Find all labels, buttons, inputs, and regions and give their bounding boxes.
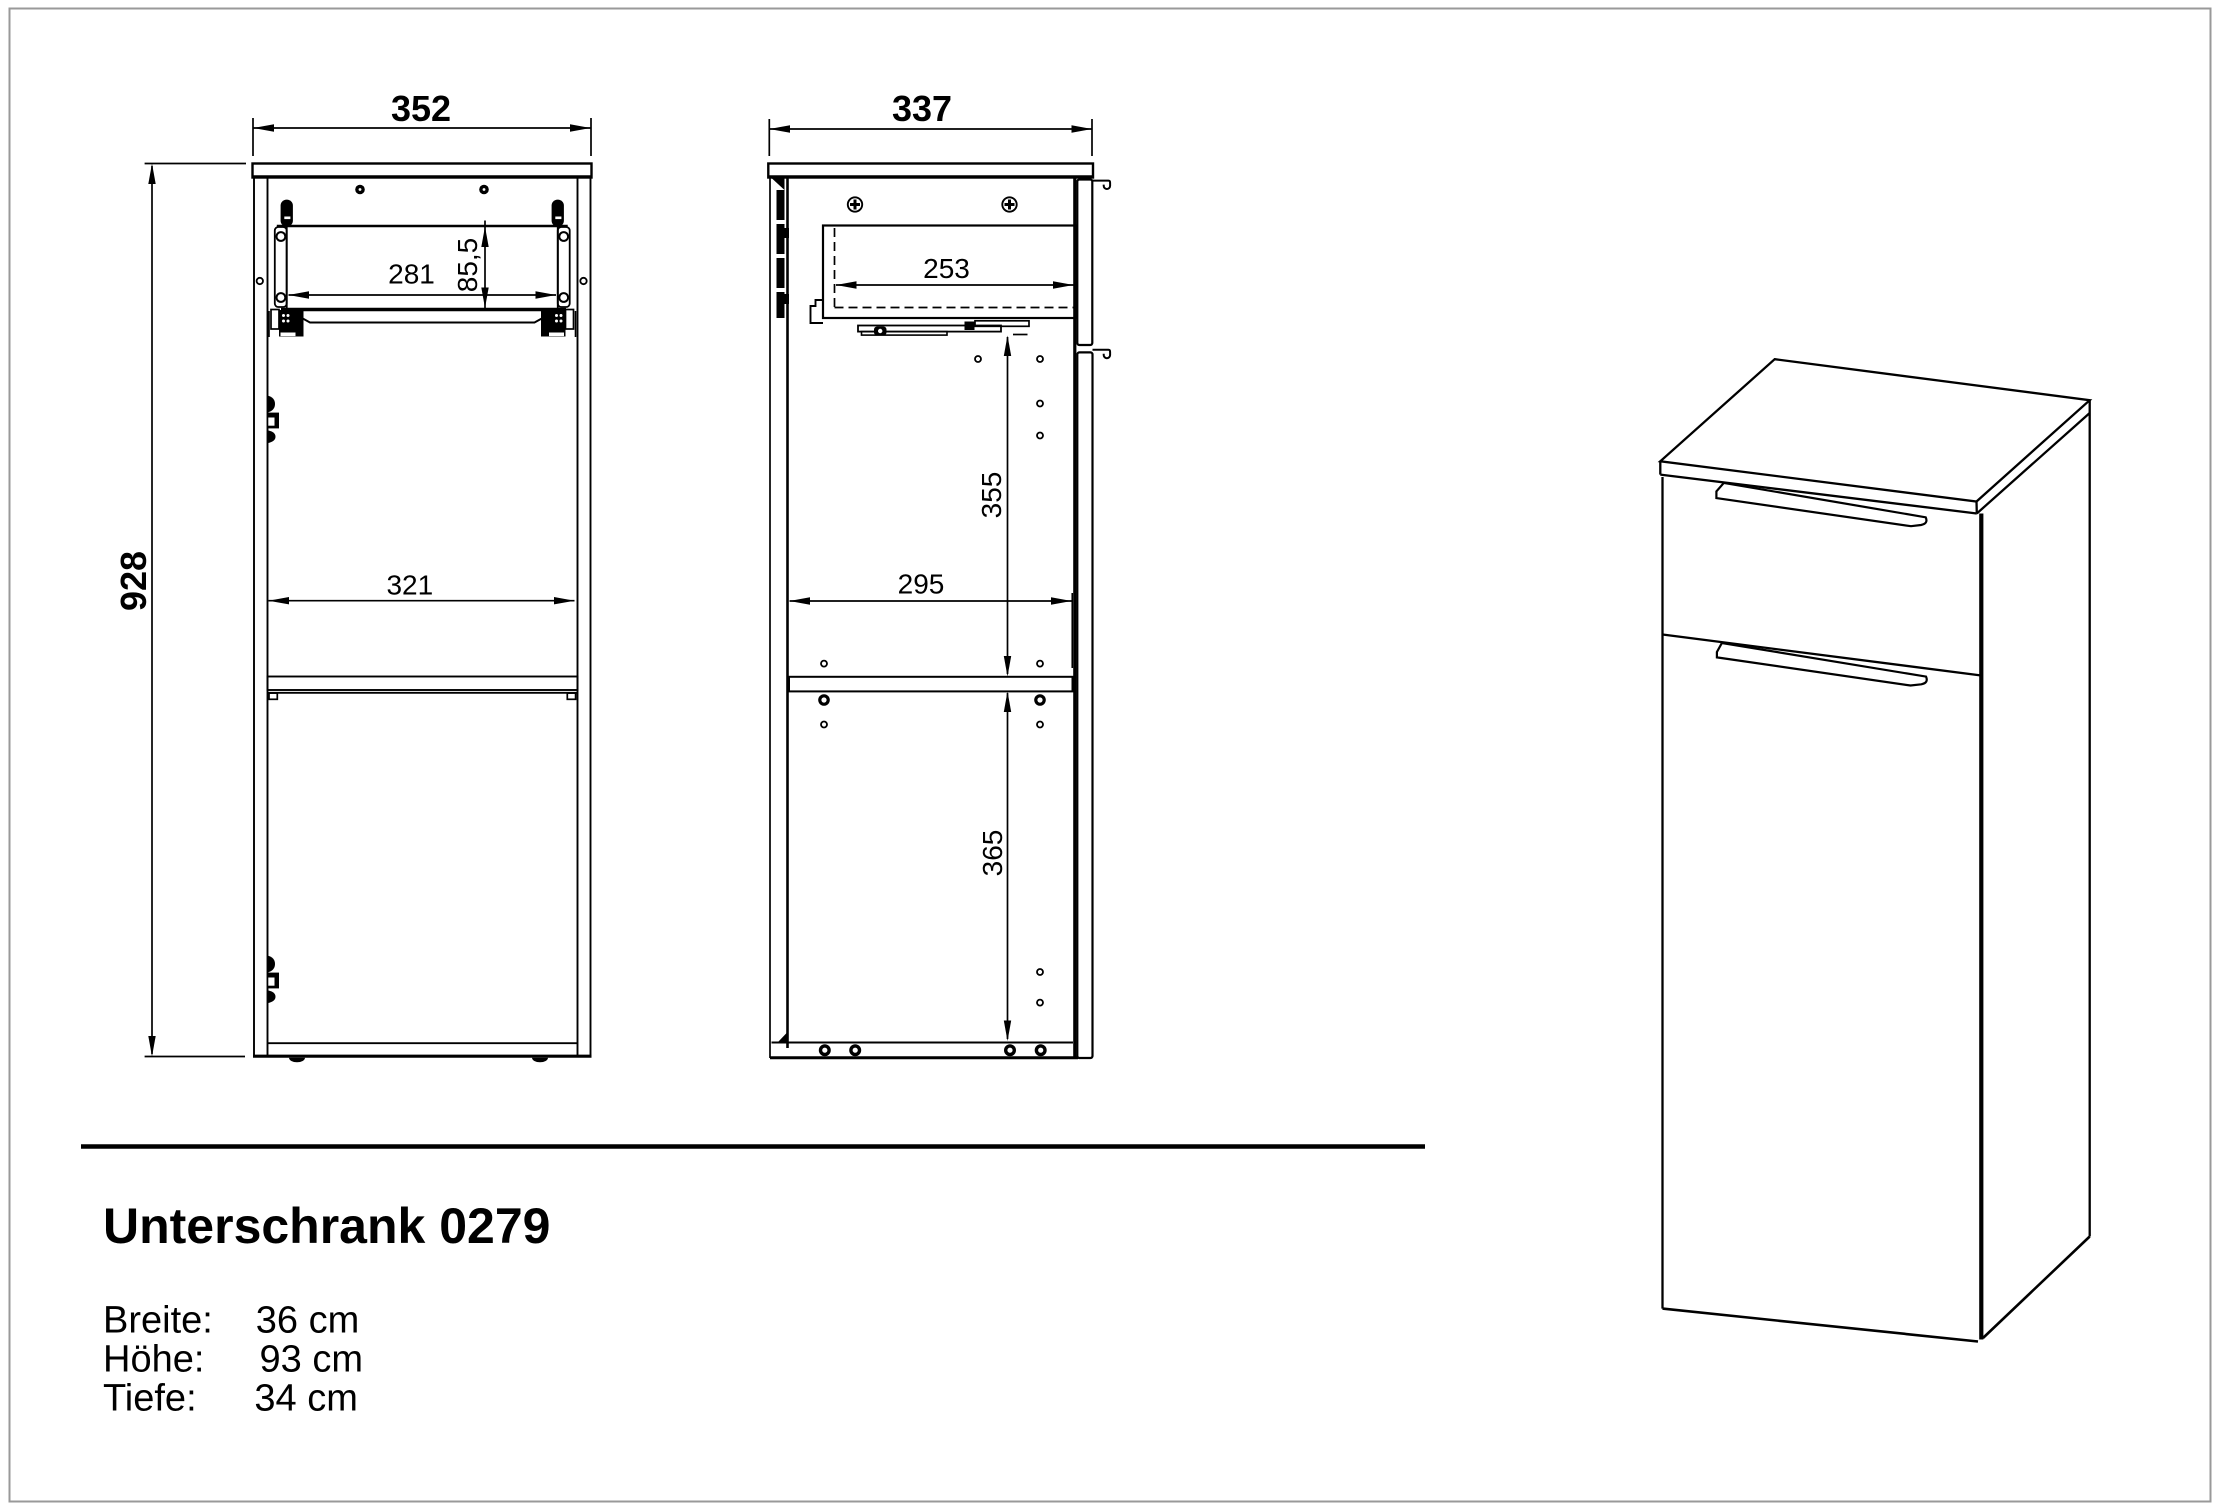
svg-text:928: 928 <box>113 551 154 611</box>
svg-text:281: 281 <box>388 259 435 290</box>
svg-text:93 cm: 93 cm <box>260 1339 363 1381</box>
svg-text:34 cm: 34 cm <box>254 1378 357 1420</box>
svg-text:Breite:: Breite: <box>103 1299 213 1341</box>
svg-text:295: 295 <box>898 568 945 599</box>
svg-text:352: 352 <box>391 88 451 129</box>
svg-text:355: 355 <box>976 472 1007 519</box>
svg-text:85,5: 85,5 <box>452 238 483 293</box>
svg-text:Höhe:: Höhe: <box>103 1339 204 1381</box>
svg-text:365: 365 <box>977 830 1008 877</box>
svg-text:36 cm: 36 cm <box>256 1299 359 1341</box>
svg-text:Tiefe:: Tiefe: <box>103 1378 197 1420</box>
svg-text:321: 321 <box>386 569 433 600</box>
svg-text:Unterschrank 0279: Unterschrank 0279 <box>103 1198 550 1254</box>
svg-text:253: 253 <box>923 253 970 284</box>
svg-text:337: 337 <box>892 88 952 129</box>
